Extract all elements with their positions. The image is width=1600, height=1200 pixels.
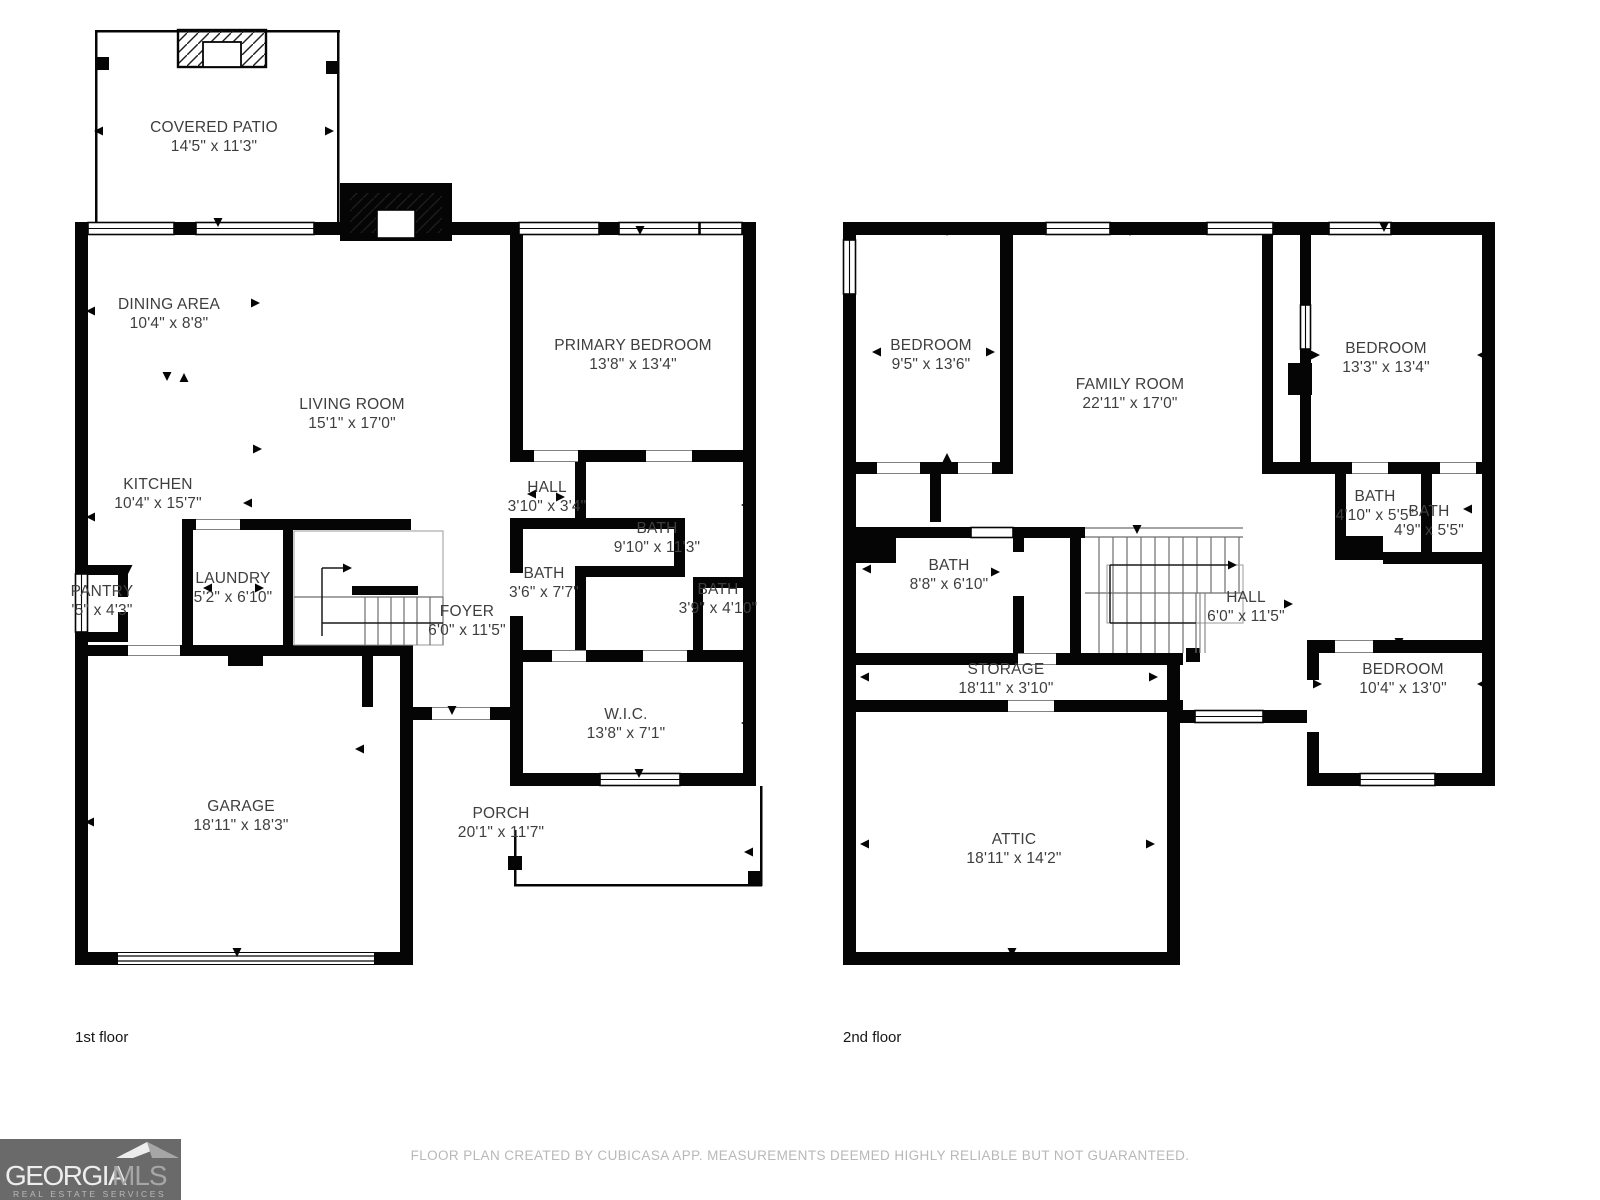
room-label-attic: ATTIC 18'11" x 14'2" — [966, 830, 1061, 868]
room-label-kitchen: KITCHEN 10'4" x 15'7" — [114, 475, 202, 513]
fireplace-chimney-patio — [178, 30, 266, 67]
tick-marks — [85, 127, 1486, 958]
room-label-living-room: LIVING ROOM 15'1" x 17'0" — [299, 395, 405, 433]
georgia-mls-logo: GEORGIA MLS REAL ESTATE SERVICES — [0, 1139, 181, 1200]
disclaimer-text: FLOOR PLAN CREATED BY CUBICASA APP. MEAS… — [0, 1148, 1600, 1163]
room-label-storage: STORAGE 18'11" x 3'10" — [958, 660, 1053, 698]
logo-tagline: REAL ESTATE SERVICES — [13, 1189, 166, 1199]
room-label-covered-patio: COVERED PATIO 14'5" x 11'3" — [150, 118, 278, 156]
room-label-bath-49: BATH 4'9" x 5'5" — [1394, 502, 1464, 540]
georgia-mls-logo-graphic: GEORGIA MLS REAL ESTATE SERVICES — [0, 1139, 181, 1200]
room-label-bedroom-104: BEDROOM 10'4" x 13'0" — [1359, 660, 1447, 698]
room-label-hall-2nd: HALL 6'0" x 11'5" — [1207, 588, 1285, 626]
room-label-bedroom-95: BEDROOM 9'5" x 13'6" — [890, 336, 972, 374]
floorplan-page: COVERED PATIO 14'5" x 11'3" DINING AREA … — [0, 0, 1600, 1200]
room-label-bath-36: BATH 3'6" x 7'7" — [509, 564, 579, 602]
logo-suffix: MLS — [112, 1160, 167, 1191]
room-label-bath-88: BATH 8'8" x 6'10" — [910, 556, 989, 594]
garage-door — [118, 953, 374, 964]
room-label-bedroom-133: BEDROOM 13'3" x 13'4" — [1342, 339, 1430, 377]
porch-outline — [508, 786, 763, 887]
room-label-bath-910: BATH 9'10" x 11'3" — [614, 519, 700, 557]
second-floor-caption: 2nd floor — [843, 1029, 901, 1046]
room-label-garage: GARAGE 18'11" x 18'3" — [193, 797, 288, 835]
room-label-foyer: FOYER 6'0" x 11'5" — [428, 602, 506, 640]
room-label-pantry: PANTRY '5" x 4'3" — [71, 582, 134, 620]
room-label-family-room: FAMILY ROOM 22'11" x 17'0" — [1076, 375, 1184, 413]
room-label-porch: PORCH 20'1" x 11'7" — [458, 804, 544, 842]
first-floor-caption: 1st floor — [75, 1029, 128, 1046]
room-label-laundry: LAUNDRY 5'2" x 6'10" — [194, 569, 273, 607]
room-label-dining-area: DINING AREA 10'4" x 8'8" — [118, 295, 220, 333]
logo-brand: GEORGIA — [5, 1160, 127, 1191]
room-label-wic: W.I.C. 13'8" x 7'1" — [587, 705, 666, 743]
room-label-hall-1st: HALL 3'10" x 3'4" — [508, 478, 587, 516]
fireplace-chimney-wall — [350, 193, 442, 238]
room-label-bath-39: BATH 3'9" x 4'10" — [679, 580, 758, 618]
room-label-primary-bedroom: PRIMARY BEDROOM 13'8" x 13'4" — [554, 336, 711, 374]
